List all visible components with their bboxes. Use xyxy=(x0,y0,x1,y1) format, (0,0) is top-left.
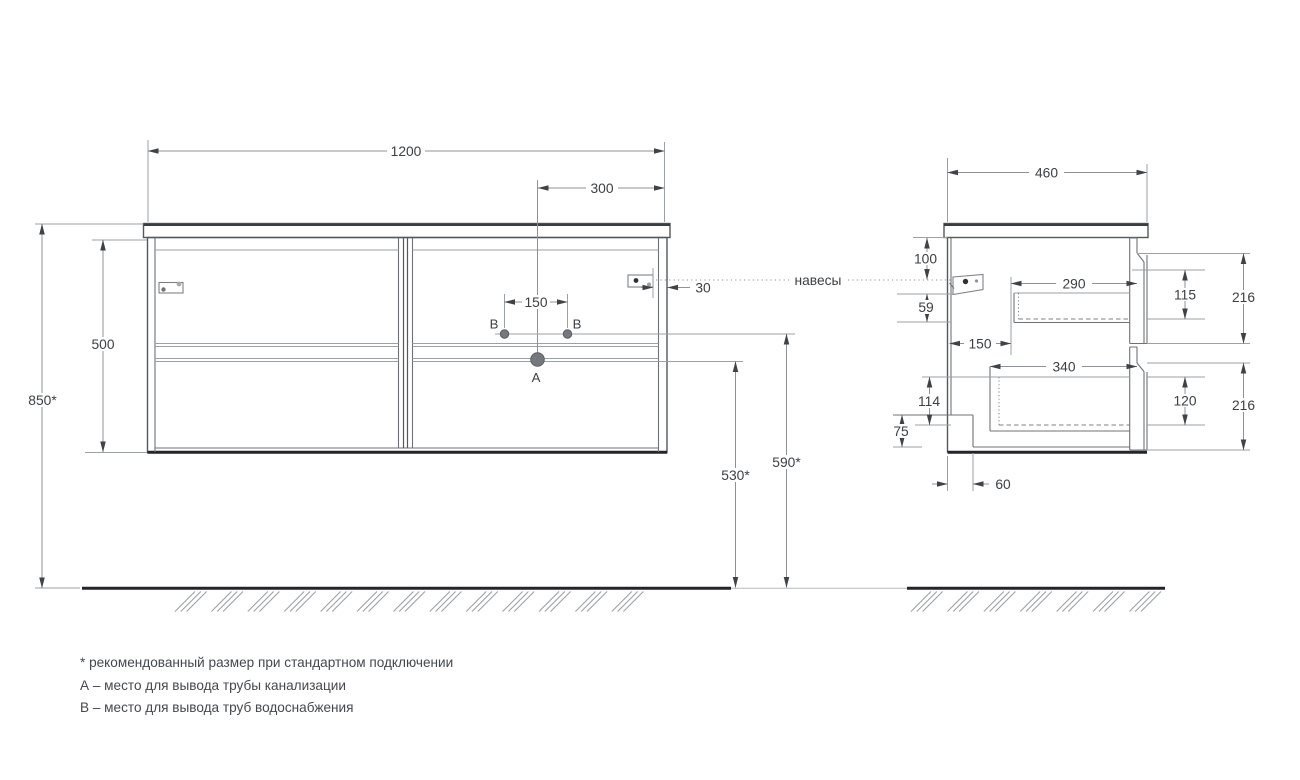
floor-hatch-stroke xyxy=(1057,592,1077,612)
floor-hatch-stroke xyxy=(1093,592,1113,612)
technical-drawing-vanity: B B A 1200 300 150 850* 500 30 53 xyxy=(0,0,1300,780)
water-outlet-right xyxy=(563,330,571,338)
floor-hatch-stroke xyxy=(508,592,528,612)
floor xyxy=(82,588,1165,611)
floor-hatch-stroke xyxy=(990,592,1010,612)
dim-water-height: 590* xyxy=(772,455,801,470)
front-hanger-left xyxy=(159,282,183,293)
floor-hatch-stroke xyxy=(1129,592,1149,612)
floor-hatch-stroke xyxy=(959,592,979,612)
dim-front-width: 1200 xyxy=(391,144,422,159)
floor-hatch-stroke xyxy=(503,592,523,612)
hangers-label: навесы xyxy=(795,273,842,288)
floor-hatch-stroke xyxy=(1099,592,1119,612)
floor-hatch-stroke xyxy=(472,592,492,612)
footnote-asterisk: * рекомендованный размер при стандартном… xyxy=(80,655,453,670)
floor-hatch-stroke xyxy=(618,592,638,612)
floor-hatch-stroke xyxy=(187,592,207,612)
dim-sink-offset: 300 xyxy=(590,181,613,196)
dim-install-height: 850* xyxy=(28,393,57,408)
label-b-right: B xyxy=(573,317,582,332)
floor-hatch-stroke xyxy=(1020,592,1040,612)
dim-drawer2-depth: 340 xyxy=(1052,359,1075,374)
dim-drawer2-front: 216 xyxy=(1232,398,1255,413)
floor-hatch-stroke xyxy=(223,592,243,612)
side-view: 460 100 59 290 115 216 150 340 120 xyxy=(887,158,1261,492)
floor-hatch-stroke xyxy=(466,592,486,612)
floor-hatch-stroke xyxy=(1141,592,1161,612)
floor-hatch-stroke xyxy=(514,592,534,612)
front-view: B B A 1200 300 150 850* 500 30 53 xyxy=(24,140,806,588)
floor-hatch-stroke xyxy=(217,592,237,612)
floor-hatch-stroke xyxy=(1068,592,1088,612)
dim-hanger-inset: 30 xyxy=(695,280,711,295)
floor-hatch-stroke xyxy=(587,592,607,612)
label-b-left: B xyxy=(490,317,499,332)
floor-hatch-stroke xyxy=(911,592,931,612)
floor-hatch-stroke xyxy=(430,592,450,612)
floor-hatch-stroke xyxy=(284,592,304,612)
dim-recess-height: 75 xyxy=(893,424,909,439)
dim-water-spacing: 150 xyxy=(524,295,547,310)
floor-hatch-stroke xyxy=(575,592,595,612)
floor-hatch-stroke xyxy=(581,592,601,612)
floor-hatch-stroke xyxy=(211,592,231,612)
floor-hatch-stroke xyxy=(393,592,413,612)
floor-hatch-stroke xyxy=(405,592,425,612)
front-hanger-right xyxy=(628,275,653,287)
floor-hatch-stroke xyxy=(478,592,498,612)
floor-hatch-stroke xyxy=(953,592,973,612)
floor-hatch-stroke xyxy=(181,592,201,612)
front-walls xyxy=(155,238,659,452)
floor-hatch-stroke xyxy=(259,592,279,612)
dim-back-offset: 150 xyxy=(968,336,991,351)
floor-hatch-stroke xyxy=(369,592,389,612)
floor-hatch-stroke xyxy=(332,592,352,612)
floor-hatch-stroke xyxy=(545,592,565,612)
floor-hatch-stroke xyxy=(248,592,268,612)
side-drawer-box-tops xyxy=(922,293,1130,377)
floor-hatch-stroke xyxy=(1032,592,1052,612)
floor-hatch-stroke xyxy=(290,592,310,612)
dim-drawer2-height: 120 xyxy=(1173,393,1196,408)
floor-hatch-stroke xyxy=(551,592,571,612)
footnote-point-b: В – место для вывода труб водоснабжения xyxy=(80,700,353,715)
floor-hatch-stroke xyxy=(296,592,316,612)
floor-hatch-stroke xyxy=(1105,592,1125,612)
floor-hatch-stroke xyxy=(436,592,456,612)
dim-depth: 460 xyxy=(1035,165,1058,180)
side-hanger xyxy=(950,275,984,295)
side-ext-lines xyxy=(893,158,1250,491)
dim-drain-height: 530* xyxy=(721,468,750,483)
floor-hatching-side xyxy=(911,592,1161,612)
drawing-svg: B B A 1200 300 150 850* 500 30 53 xyxy=(0,0,1300,780)
floor-hatch-stroke xyxy=(254,592,274,612)
dim-body-height: 500 xyxy=(91,337,114,352)
floor-hatching-front xyxy=(175,592,643,612)
floor-hatch-stroke xyxy=(923,592,943,612)
floor-hatch-stroke xyxy=(441,592,461,612)
floor-hatch-stroke xyxy=(321,592,341,612)
dim-hanger-gap: 59 xyxy=(918,300,934,315)
floor-hatch-stroke xyxy=(1135,592,1155,612)
water-outlet-left xyxy=(500,330,508,338)
floor-hatch-stroke xyxy=(326,592,346,612)
floor-hatch-stroke xyxy=(363,592,383,612)
dim-recess-depth: 60 xyxy=(995,477,1011,492)
footnotes: * рекомендованный размер при стандартном… xyxy=(80,655,453,715)
floor-hatch-stroke xyxy=(947,592,967,612)
front-divider xyxy=(404,238,408,448)
drain-outlet xyxy=(531,353,545,367)
floor-hatch-stroke xyxy=(984,592,1004,612)
floor-hatch-stroke xyxy=(539,592,559,612)
floor-hatch-stroke xyxy=(623,592,643,612)
front-drawer-edges xyxy=(155,250,659,362)
dim-drawer1-front: 216 xyxy=(1232,290,1255,305)
floor-hatch-stroke xyxy=(175,592,195,612)
floor-hatch-stroke xyxy=(1026,592,1046,612)
floor-hatch-stroke xyxy=(917,592,937,612)
side-drawer-box-backs xyxy=(999,293,1019,425)
floor-hatch-stroke xyxy=(612,592,632,612)
dim-drawer1-height: 115 xyxy=(1174,287,1196,302)
dim-bottom-back: 114 xyxy=(918,394,940,409)
floor-hatch-stroke xyxy=(1062,592,1082,612)
dim-hanger-top: 100 xyxy=(914,251,937,266)
floor-hatch-stroke xyxy=(399,592,419,612)
floor-hatch-stroke xyxy=(357,592,377,612)
footnote-point-a: А – место для вывода трубы канализации xyxy=(80,678,346,693)
label-a: A xyxy=(532,370,541,385)
floor-hatch-stroke xyxy=(995,592,1015,612)
dim-drawer1-depth: 290 xyxy=(1062,276,1085,291)
